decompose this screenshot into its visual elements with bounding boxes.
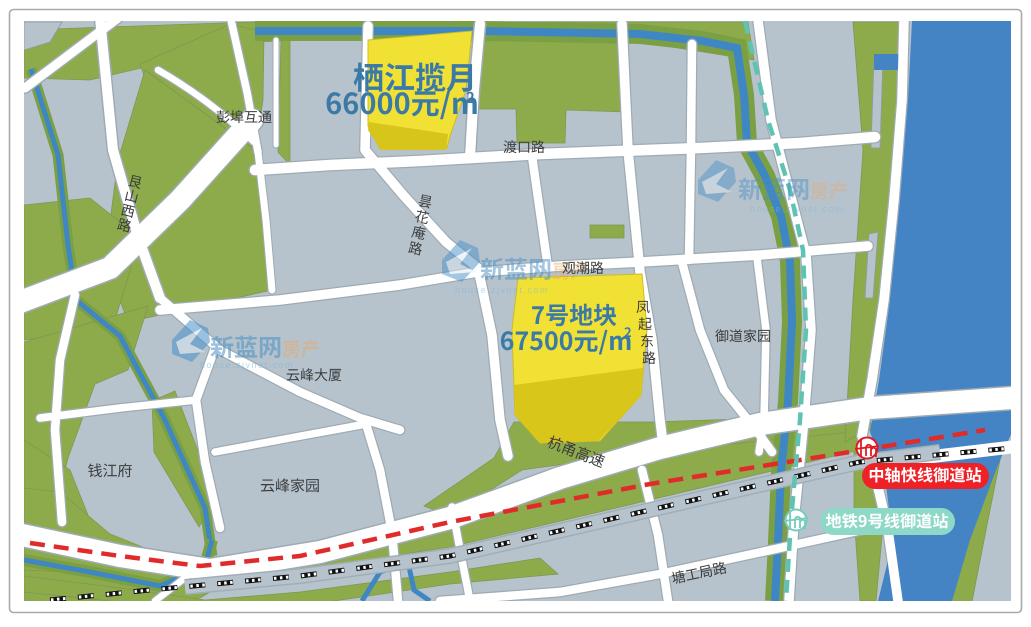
svg-text:house.zjvnet.com: house.zjvnet.com [750,204,844,214]
svg-text:house.zjvnet.com: house.zjvnet.com [455,285,549,295]
svg-text:house.zjvnet.com: house.zjvnet.com [200,360,294,370]
